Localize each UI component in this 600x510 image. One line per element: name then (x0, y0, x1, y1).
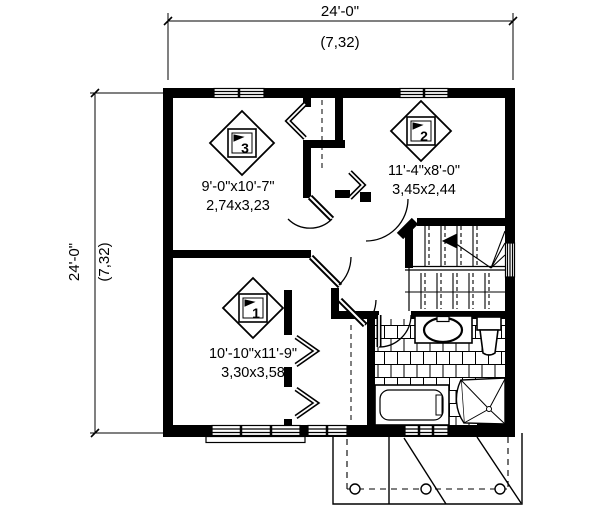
window-room2-top (400, 89, 448, 98)
room-2-number: 2 (420, 128, 428, 144)
room-1-imperial: 10'-10"x11'-9" (209, 346, 297, 362)
room-3-metric: 2,74x3,23 (206, 198, 270, 214)
window-sill (206, 437, 305, 443)
winder-fan (452, 231, 505, 268)
corner-shower (456, 378, 505, 424)
room-3-number: 3 (241, 140, 249, 156)
window-bathroom-bottom (405, 426, 448, 436)
floor-plan-drawing: 24'-0" (7,32) 24'-0" (7,32) (0, 0, 600, 510)
room-2-imperial: 11'-4"x8'-0" (388, 163, 460, 179)
top-dimension-metric: (7,32) (320, 34, 359, 51)
room-2-metric: 3,45x2,44 (392, 182, 456, 198)
left-dimension-imperial: 24'-0" (66, 243, 83, 281)
bathtub (375, 385, 449, 425)
room-3-imperial: 9'-0"x10'-7" (201, 179, 274, 195)
window-stair-right (506, 243, 515, 277)
lower-flight-treads (421, 273, 489, 309)
bifold-doors (288, 104, 363, 417)
window-room1-bottom (206, 426, 305, 443)
room-1-number: 1 (252, 305, 260, 321)
top-dimension-imperial: 24'-0" (321, 3, 359, 20)
room-1-metric: 3,30x3,58 (221, 365, 285, 381)
window-room3-top (214, 89, 264, 98)
floor-plan-canvas: 24'-0" (7,32) 24'-0" (7,32) (0, 0, 600, 510)
vanity-sink (415, 316, 472, 343)
staircase (405, 226, 505, 311)
window-entry-bottom (308, 426, 347, 436)
porch-roof-outline (333, 433, 522, 504)
left-dimension-metric: (7,32) (96, 242, 113, 281)
